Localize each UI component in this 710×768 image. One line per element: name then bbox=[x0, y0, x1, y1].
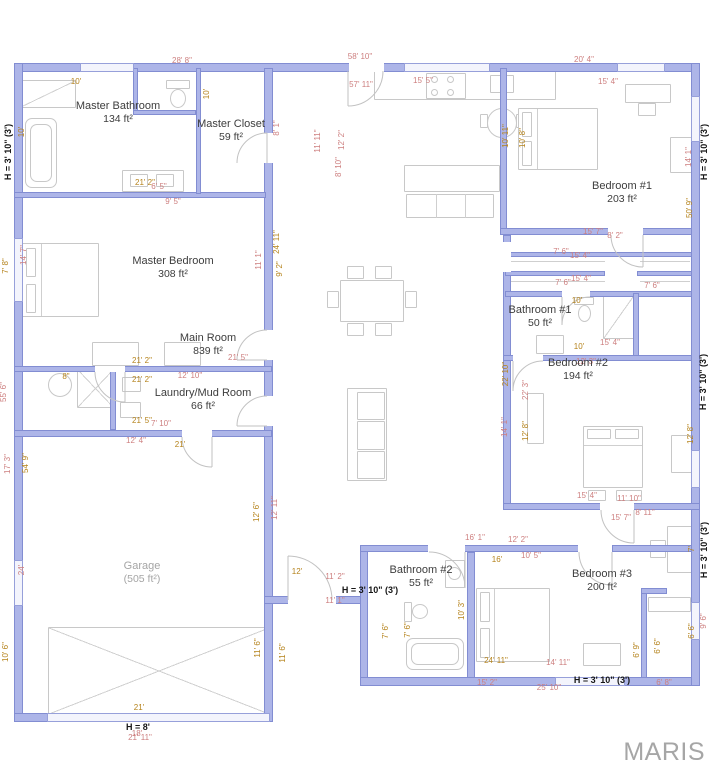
dimension-label: 10' 3" bbox=[458, 600, 466, 620]
room-name: Bathroom #2 bbox=[390, 564, 453, 577]
dimension-label: 21' 2" bbox=[132, 376, 152, 384]
dimension-label: 10' 8" bbox=[519, 128, 527, 148]
room-label-master-bedroom: Master Bedroom308 ft² bbox=[132, 255, 213, 281]
dimension-label: 15' 2" bbox=[477, 679, 497, 687]
ceiling-height-label: H = 8' bbox=[126, 722, 150, 732]
ceiling-height-label: H = 3' 10" (3') bbox=[699, 522, 709, 578]
dimension-label: 17' 3" bbox=[4, 454, 12, 474]
room-area: 194 ft² bbox=[548, 370, 608, 383]
room-label-main-room: Main Room839 ft² bbox=[180, 332, 236, 358]
dimension-label: 55' 6" bbox=[0, 382, 8, 402]
door-arc bbox=[95, 372, 125, 402]
room-name: Bedroom #2 bbox=[548, 357, 608, 370]
room-name: Master Bathroom bbox=[76, 100, 160, 113]
dimension-label: 54' 9" bbox=[22, 453, 30, 473]
dimension-label: 7' 6" bbox=[644, 282, 660, 290]
dimension-label: 14' 7" bbox=[20, 245, 28, 265]
dimension-label: 7' 6" bbox=[404, 622, 412, 638]
ceiling-height-label: H = 3' 10" (3') bbox=[342, 585, 398, 595]
room-area: 55 ft² bbox=[390, 577, 453, 590]
dimension-label: 24' 11" bbox=[484, 657, 508, 665]
dimension-label: 28' 8" bbox=[172, 57, 192, 65]
dimension-label: 20' 4" bbox=[574, 56, 594, 64]
room-label-bedroom-2: Bedroom #2194 ft² bbox=[548, 357, 608, 383]
room-label-master-closet: Master Closet59 ft² bbox=[197, 118, 265, 144]
dimension-label: 11' 2" bbox=[325, 573, 344, 581]
dimension-label: 12' 2" bbox=[338, 130, 346, 150]
room-name: Laundry/Mud Room bbox=[155, 387, 252, 400]
ceiling-height-label: H = 3' 10" (3') bbox=[574, 675, 630, 685]
maris-watermark: MARIS bbox=[623, 738, 705, 767]
room-area: 203 ft² bbox=[592, 193, 652, 206]
dimension-label: 11' 1" bbox=[325, 597, 344, 605]
dimension-label: 7' 8" bbox=[2, 258, 10, 274]
dimension-label: 21' bbox=[175, 441, 185, 449]
dimension-label: 16' 1" bbox=[465, 534, 485, 542]
dimension-label: 15' 5" bbox=[413, 77, 433, 85]
dimension-label: 8' 11" bbox=[635, 509, 654, 517]
ceiling-height-label: H = 3' 10" (3') bbox=[3, 124, 13, 180]
dimension-label: 11' 6" bbox=[254, 638, 262, 657]
dimension-label: 9' 5" bbox=[165, 198, 181, 206]
dimension-label: 8' 10" bbox=[335, 157, 343, 177]
floor-plan: MARIS 28' 8"58' 10"20' 4"57' 11"10'15' 5… bbox=[0, 0, 710, 768]
ceiling-height-label: H = 3' 10" (3') bbox=[699, 124, 709, 180]
room-area: 134 ft² bbox=[76, 113, 160, 126]
dimension-label: 8" bbox=[62, 373, 69, 381]
room-name: Bedroom #3 bbox=[572, 568, 632, 581]
room-name: Garage bbox=[124, 560, 161, 573]
dimension-label: 24' 11" bbox=[273, 230, 281, 254]
dimension-label: 22' 3" bbox=[522, 380, 530, 400]
room-label-master-bathroom: Master Bathroom134 ft² bbox=[76, 100, 160, 126]
ceiling-height-label: H = 3' 10" (3') bbox=[698, 354, 708, 410]
room-name: Main Room bbox=[180, 332, 236, 345]
dimension-label: 10' 5" bbox=[521, 552, 541, 560]
room-area: 200 ft² bbox=[572, 581, 632, 594]
room-label-bedroom-3: Bedroom #3200 ft² bbox=[572, 568, 632, 594]
room-label-bathroom-2: Bathroom #255 ft² bbox=[390, 564, 453, 590]
dimension-label: 12' 2" bbox=[508, 536, 528, 544]
dimension-label: 12' 4" bbox=[126, 437, 146, 445]
dimension-label: 16' bbox=[492, 556, 502, 564]
room-name: Master Bedroom bbox=[132, 255, 213, 268]
room-name: Bedroom #1 bbox=[592, 180, 652, 193]
dimension-label: 12' 8" bbox=[522, 421, 530, 441]
room-area: 59 ft² bbox=[197, 131, 265, 144]
dimension-label: 24' bbox=[18, 565, 26, 575]
dimension-label: 50' 9" bbox=[686, 198, 694, 218]
dimension-label: 6' 9" bbox=[633, 642, 641, 658]
dimension-label: 11' 11" bbox=[314, 129, 322, 152]
room-area: 66 ft² bbox=[155, 400, 252, 413]
dimension-label: 15' 4" bbox=[577, 492, 597, 500]
room-label-bathroom-1: Bathroom #150 ft² bbox=[509, 304, 572, 330]
dimension-label: 14' 11" bbox=[546, 659, 570, 667]
dimension-label: 12' 11" bbox=[271, 496, 279, 520]
dimension-label: 22' 10" bbox=[502, 362, 510, 386]
dimension-label: 10' bbox=[203, 89, 211, 99]
door-arc bbox=[182, 437, 212, 467]
dimension-label: 7' 6" bbox=[553, 248, 569, 256]
dimension-label: 7' bbox=[688, 546, 696, 552]
dimension-label: 15' 4" bbox=[570, 252, 590, 260]
room-label-garage: Garage(505 ft²) bbox=[124, 560, 161, 586]
dimension-label: 10' 6" bbox=[2, 642, 10, 662]
room-area: 50 ft² bbox=[509, 317, 572, 330]
dimension-label: 10' bbox=[71, 78, 81, 86]
dimension-label: 6' 6" bbox=[688, 623, 696, 639]
dimension-label: 9' 6" bbox=[700, 613, 708, 629]
dimension-label: 25' 10" bbox=[537, 684, 561, 692]
dimension-label: 15' 4" bbox=[598, 78, 618, 86]
dimension-label: 21' 5" bbox=[132, 417, 152, 425]
dimension-label: 11' 10" bbox=[617, 495, 641, 503]
dimension-label: 7' 6" bbox=[555, 279, 571, 287]
room-area: 839 ft² bbox=[180, 345, 236, 358]
dimension-label: 6' 6" bbox=[654, 638, 662, 654]
room-label-laundry-mud-room: Laundry/Mud Room66 ft² bbox=[155, 387, 252, 413]
dimension-label: 12' 6" bbox=[253, 502, 261, 522]
dimension-label: 14' 1" bbox=[501, 417, 509, 437]
dimension-label: 11' 6" bbox=[279, 643, 287, 662]
dimension-label: 21' 11" bbox=[128, 734, 152, 742]
dimension-label: 10' bbox=[18, 127, 26, 137]
dimension-label: 11' 1" bbox=[255, 250, 263, 269]
dimension-label: 12' 8" bbox=[687, 424, 695, 444]
dimension-label: 7' 6" bbox=[382, 623, 390, 639]
dimension-label: 10' 11" bbox=[502, 124, 510, 148]
dimension-label: 21' bbox=[134, 704, 144, 712]
dimension-label: 12' bbox=[292, 568, 302, 576]
dimension-label: 8' 2" bbox=[607, 232, 623, 240]
dimension-label: 6' 8" bbox=[656, 679, 672, 687]
room-name: Bathroom #1 bbox=[509, 304, 572, 317]
dimension-label: 14' 1" bbox=[685, 147, 693, 167]
dimension-label: 15' 7" bbox=[611, 514, 631, 522]
dimension-label: 6' 5" bbox=[151, 183, 167, 191]
dimension-label: 8' 1" bbox=[273, 120, 281, 136]
dimension-label: 10' bbox=[572, 297, 582, 305]
dimension-label: 57' 11" bbox=[349, 81, 373, 89]
dimension-label: 15' 4" bbox=[571, 275, 591, 283]
dimension-label: 15' 7" bbox=[583, 228, 603, 236]
dimension-label: 15' 4" bbox=[600, 339, 620, 347]
room-area: 308 ft² bbox=[132, 268, 213, 281]
room-label-bedroom-1: Bedroom #1203 ft² bbox=[592, 180, 652, 206]
dimension-label: 12' 10" bbox=[178, 372, 202, 380]
dimension-label: 58' 10" bbox=[348, 53, 372, 61]
dimension-label: 10' bbox=[574, 343, 584, 351]
dimension-label: 9' 2" bbox=[276, 261, 284, 277]
dimension-label: 21' 2" bbox=[132, 357, 152, 365]
room-area: (505 ft²) bbox=[124, 573, 161, 586]
dimension-label: 7' 10" bbox=[151, 420, 171, 428]
room-name: Master Closet bbox=[197, 118, 265, 131]
